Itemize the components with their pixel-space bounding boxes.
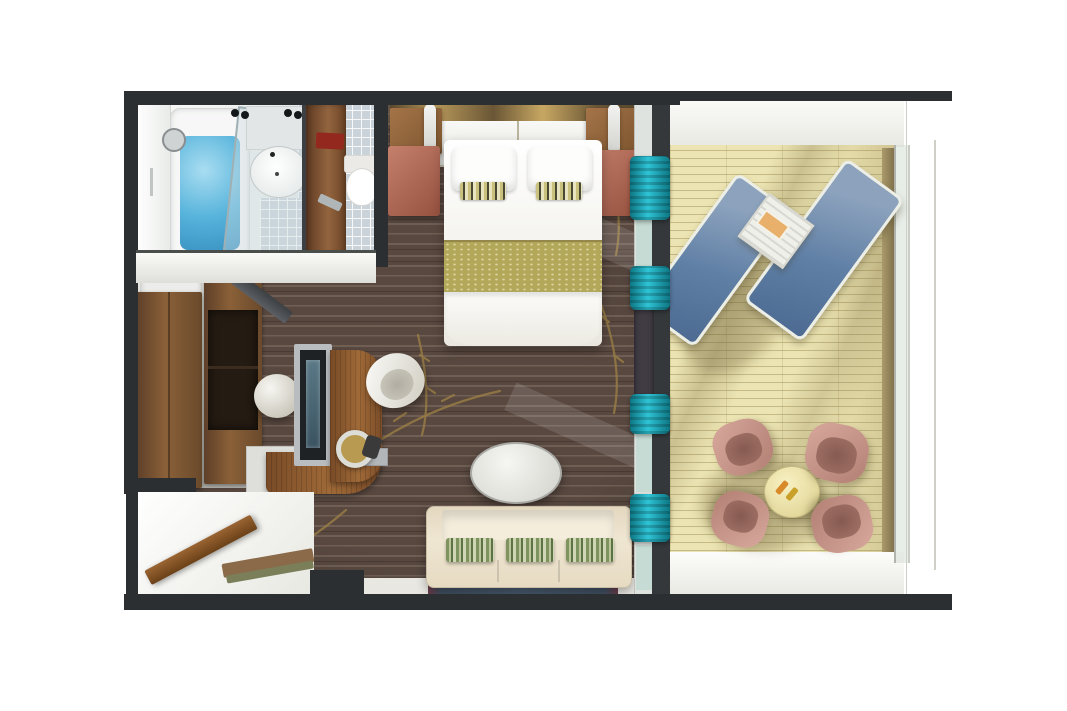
cabinet-handle xyxy=(150,168,153,196)
floor-plan-stage xyxy=(0,0,1067,711)
bathroom-wall-cabinet xyxy=(136,103,171,253)
sofa-cushion-3 xyxy=(566,538,614,562)
wardrobe-seam xyxy=(168,292,170,488)
desk-chair-seat xyxy=(375,363,419,406)
curtain-2 xyxy=(630,266,670,310)
ceiling-spotlight xyxy=(294,111,302,119)
accent-pillow-right xyxy=(536,182,582,200)
faucet xyxy=(270,152,275,157)
cabinet-shelf xyxy=(208,366,258,369)
wall-bottom xyxy=(124,594,952,610)
sink-drain xyxy=(275,172,279,176)
window-glass-3 xyxy=(636,545,652,590)
curtain-4 xyxy=(630,494,670,542)
cabinet-open xyxy=(208,310,258,430)
wall-top-balcony xyxy=(680,91,952,101)
bed-foot-fold xyxy=(444,292,602,346)
window-glass-2 xyxy=(636,432,652,492)
oval-coffee-table xyxy=(470,442,562,504)
shower-head xyxy=(162,128,186,152)
curtain-3 xyxy=(630,394,670,434)
balcony-top-wall xyxy=(662,95,904,147)
sofa-seat xyxy=(442,510,614,540)
curtain-1 xyxy=(630,156,670,220)
wall-left xyxy=(124,91,138,494)
bed-runner xyxy=(444,240,602,296)
sofa-seam xyxy=(497,560,499,582)
wall-bathroom-divider xyxy=(374,91,388,267)
chair-seat-shadow xyxy=(813,434,859,477)
ceiling-spotlight xyxy=(241,111,249,119)
washbasin xyxy=(250,146,308,198)
wall-top xyxy=(124,91,680,105)
sliding-door xyxy=(634,302,654,400)
ceiling-spotlight xyxy=(284,109,292,117)
wall-left-lower xyxy=(126,478,138,610)
door-threshold xyxy=(310,570,364,596)
sofa-cushion-1 xyxy=(446,538,494,562)
chair-seat-shadow xyxy=(720,497,761,536)
chair-seat-shadow xyxy=(819,501,863,541)
balcony-bottom-wall xyxy=(662,552,904,596)
red-towel xyxy=(316,132,345,149)
sofa-seam xyxy=(558,560,560,582)
pendant-lamp-right xyxy=(608,104,620,154)
railing-outer-line xyxy=(934,140,936,570)
chair-seat-shadow xyxy=(722,429,766,470)
toilet-compartment-door xyxy=(306,103,346,257)
tv-screen xyxy=(306,360,320,448)
bathroom-bottom-wall xyxy=(136,250,376,283)
ceiling-spotlight xyxy=(231,109,239,117)
nightstand-left xyxy=(388,146,440,216)
accent-pillow-left xyxy=(460,182,506,200)
sofa-cushion-2 xyxy=(506,538,554,562)
